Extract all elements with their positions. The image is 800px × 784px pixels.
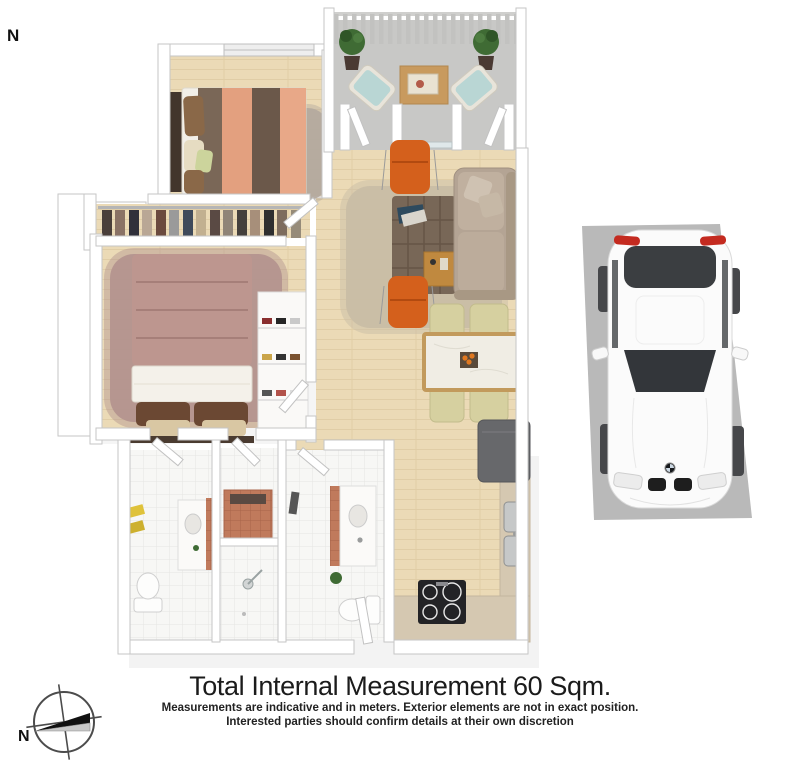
caption-block: Total Internal Measurement 60 Sqm. Measu…	[0, 671, 800, 729]
bedroom1	[170, 88, 332, 204]
washer-icon	[224, 490, 272, 538]
drain	[242, 612, 246, 616]
plant-icon	[330, 572, 342, 584]
tiled-cabinet-front	[330, 486, 340, 566]
window	[224, 44, 314, 56]
outdoor-table	[400, 66, 448, 104]
floorplan-scene: N	[0, 0, 800, 784]
floorplan-page: N	[0, 0, 800, 784]
grille	[674, 478, 692, 491]
measurement-title: Total Internal Measurement 60 Sqm.	[0, 671, 800, 701]
dining-area	[424, 304, 522, 422]
rear-window	[624, 246, 716, 288]
side-glass	[612, 260, 618, 348]
armchair-orange	[382, 140, 438, 194]
bedroom2	[104, 248, 308, 443]
cooktop-icon	[418, 580, 466, 624]
vanity-icon	[178, 498, 214, 570]
hanging-rail	[98, 206, 308, 209]
sofa	[454, 168, 518, 300]
vanity-icon	[330, 486, 376, 566]
car	[591, 230, 749, 508]
bed-double	[170, 88, 306, 196]
shower-room-floor	[220, 546, 278, 640]
pillow	[183, 96, 205, 137]
plant-icon	[193, 545, 199, 551]
serving-tray	[424, 252, 454, 286]
compass-north-label: N	[18, 728, 30, 745]
side-glass	[722, 260, 728, 348]
windshield	[624, 350, 716, 392]
floor-plan	[58, 8, 539, 668]
pillow	[195, 149, 214, 173]
pillow	[184, 170, 204, 194]
grille	[648, 478, 666, 491]
disclaimer-line-2: Interested parties should confirm detail…	[0, 715, 800, 729]
hanging-clothes	[102, 210, 301, 238]
disclaimer-line-1: Measurements are indicative and in meter…	[0, 701, 800, 715]
taillight	[614, 235, 641, 246]
hall-floor	[316, 198, 334, 450]
dining-table	[424, 334, 522, 390]
armchair-orange	[380, 276, 436, 328]
car-parking	[582, 224, 752, 520]
taillight	[700, 235, 727, 246]
balcony-door-jamb	[452, 104, 462, 150]
laundry	[224, 490, 272, 538]
